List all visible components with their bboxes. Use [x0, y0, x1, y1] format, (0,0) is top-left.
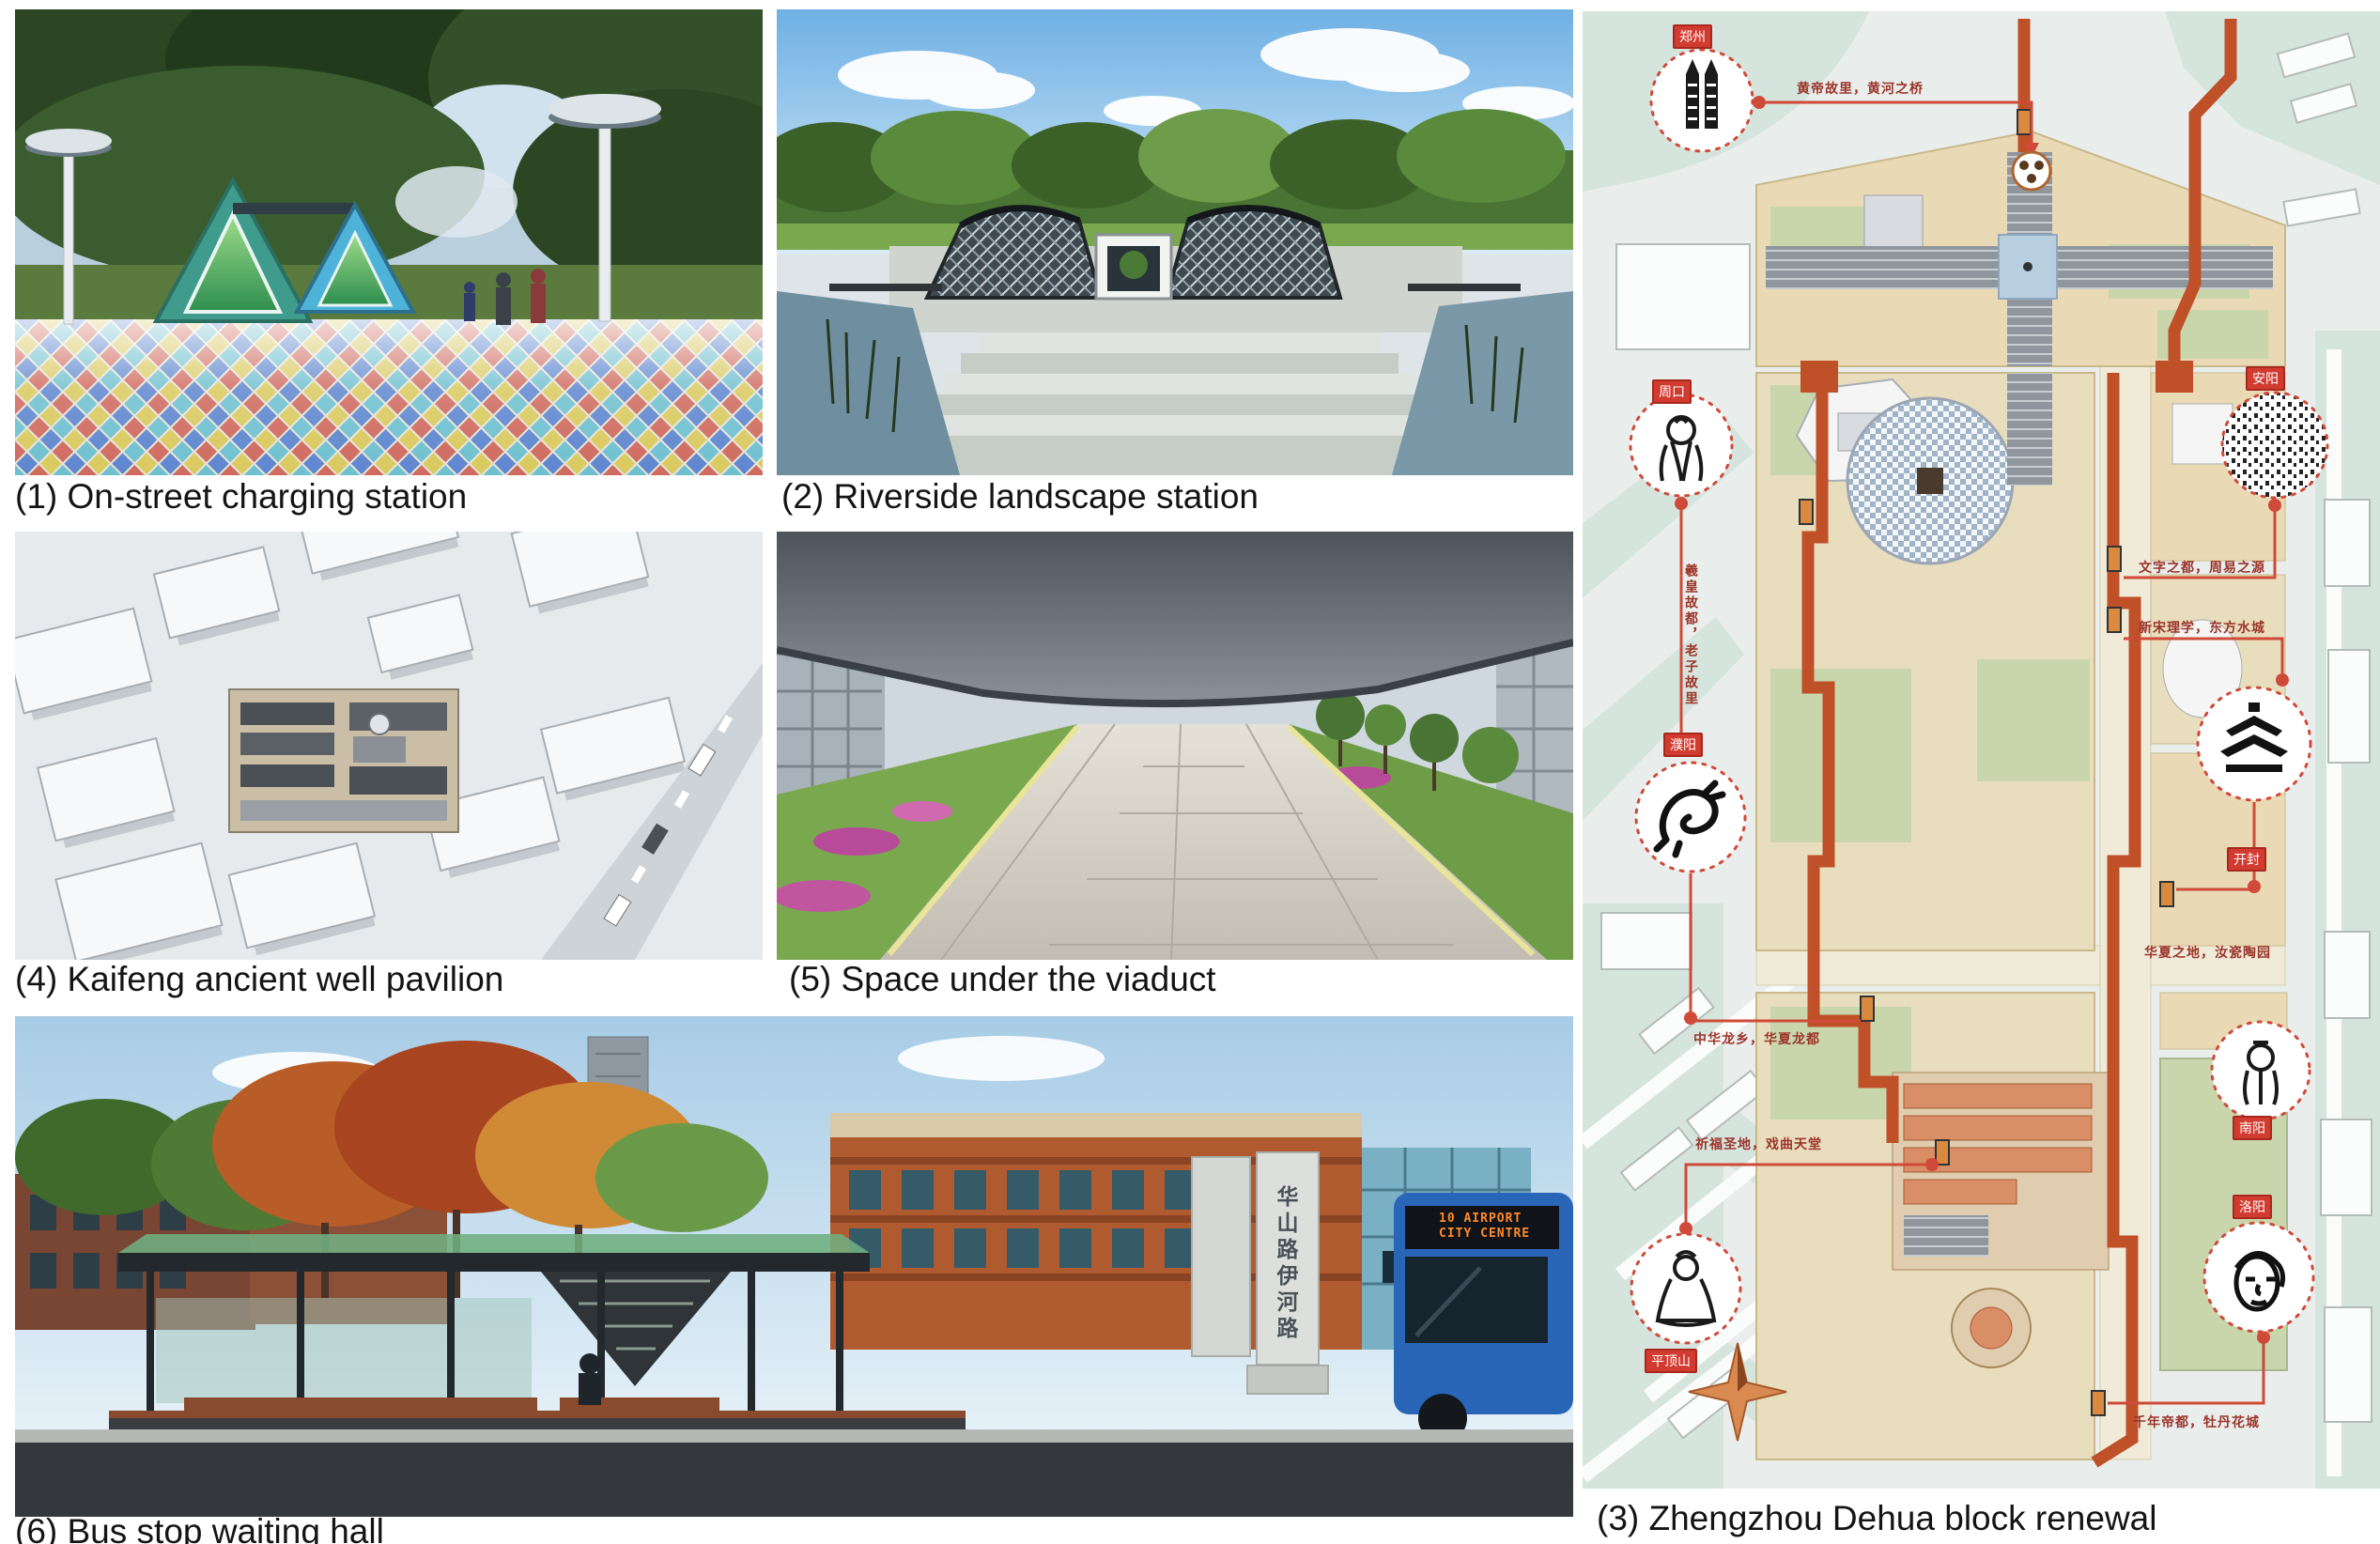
caption-2: (2) Riverside landscape station — [781, 477, 1259, 517]
central-block — [1756, 373, 2285, 950]
caption-3: (3) Zhengzhou Dehua block renewal — [1597, 1499, 2156, 1538]
kaifeng-pavilion-rendering — [15, 532, 763, 960]
panel-2-riverside-station — [777, 9, 1573, 475]
oracle-bone-script-icon — [2222, 393, 2327, 498]
bus-led-line1: 10 AIRPORT — [1439, 1212, 1580, 1227]
panel-3-dehua-map — [1583, 11, 2380, 1489]
panel-1-charging-station — [15, 9, 763, 475]
road-sign-text: 华山路伊河路 — [1270, 1185, 1302, 1345]
riverside-station-rendering — [777, 9, 1573, 475]
bus-led-line2: CITY CENTRE — [1439, 1227, 1580, 1242]
panel-5-viaduct-space — [777, 532, 1573, 960]
courtyard-complex — [229, 689, 458, 832]
dehua-block-map — [1583, 11, 2380, 1489]
caption-6: (6) Bus stop waiting hall — [15, 1512, 384, 1544]
viaduct-rendering — [777, 532, 1573, 960]
bus-stop-rendering — [15, 1016, 1573, 1517]
cross-road — [1756, 946, 2285, 985]
figure-collage: (1) On-street charging station — [0, 0, 2380, 1544]
charging-station-rendering — [15, 9, 763, 475]
panel-4-ancient-well-pavilion — [15, 532, 763, 960]
caption-4: (4) Kaifeng ancient well pavilion — [15, 960, 503, 999]
panel-6-bus-stop — [15, 1016, 1573, 1517]
caption-5: (5) Space under the viaduct — [789, 960, 1216, 999]
apex-pavilion-node — [2013, 152, 2050, 190]
road — [15, 1441, 1573, 1517]
caption-1: (1) On-street charging station — [15, 477, 467, 517]
bus-led-display: 10 AIRPORT CITY CENTRE — [1439, 1212, 1580, 1243]
plaza-steps — [893, 332, 1466, 475]
heritage-complex — [1893, 1073, 2109, 1270]
